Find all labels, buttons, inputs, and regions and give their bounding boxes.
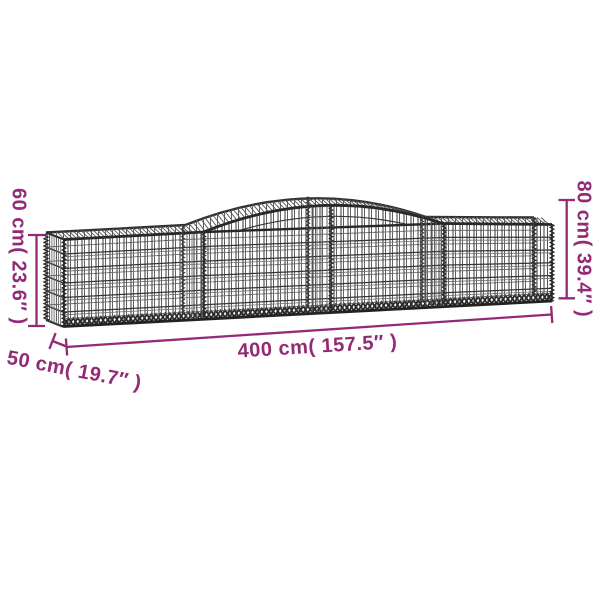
svg-text:400 cm( 157.5″ ): 400 cm( 157.5″ )	[237, 331, 398, 363]
svg-text:80 cm( 39.4″ ): 80 cm( 39.4″ )	[573, 181, 595, 318]
svg-text:60 cm( 23.6″ ): 60 cm( 23.6″ )	[8, 188, 30, 325]
svg-text:50 cm( 19.7″ ): 50 cm( 19.7″ )	[5, 347, 143, 395]
